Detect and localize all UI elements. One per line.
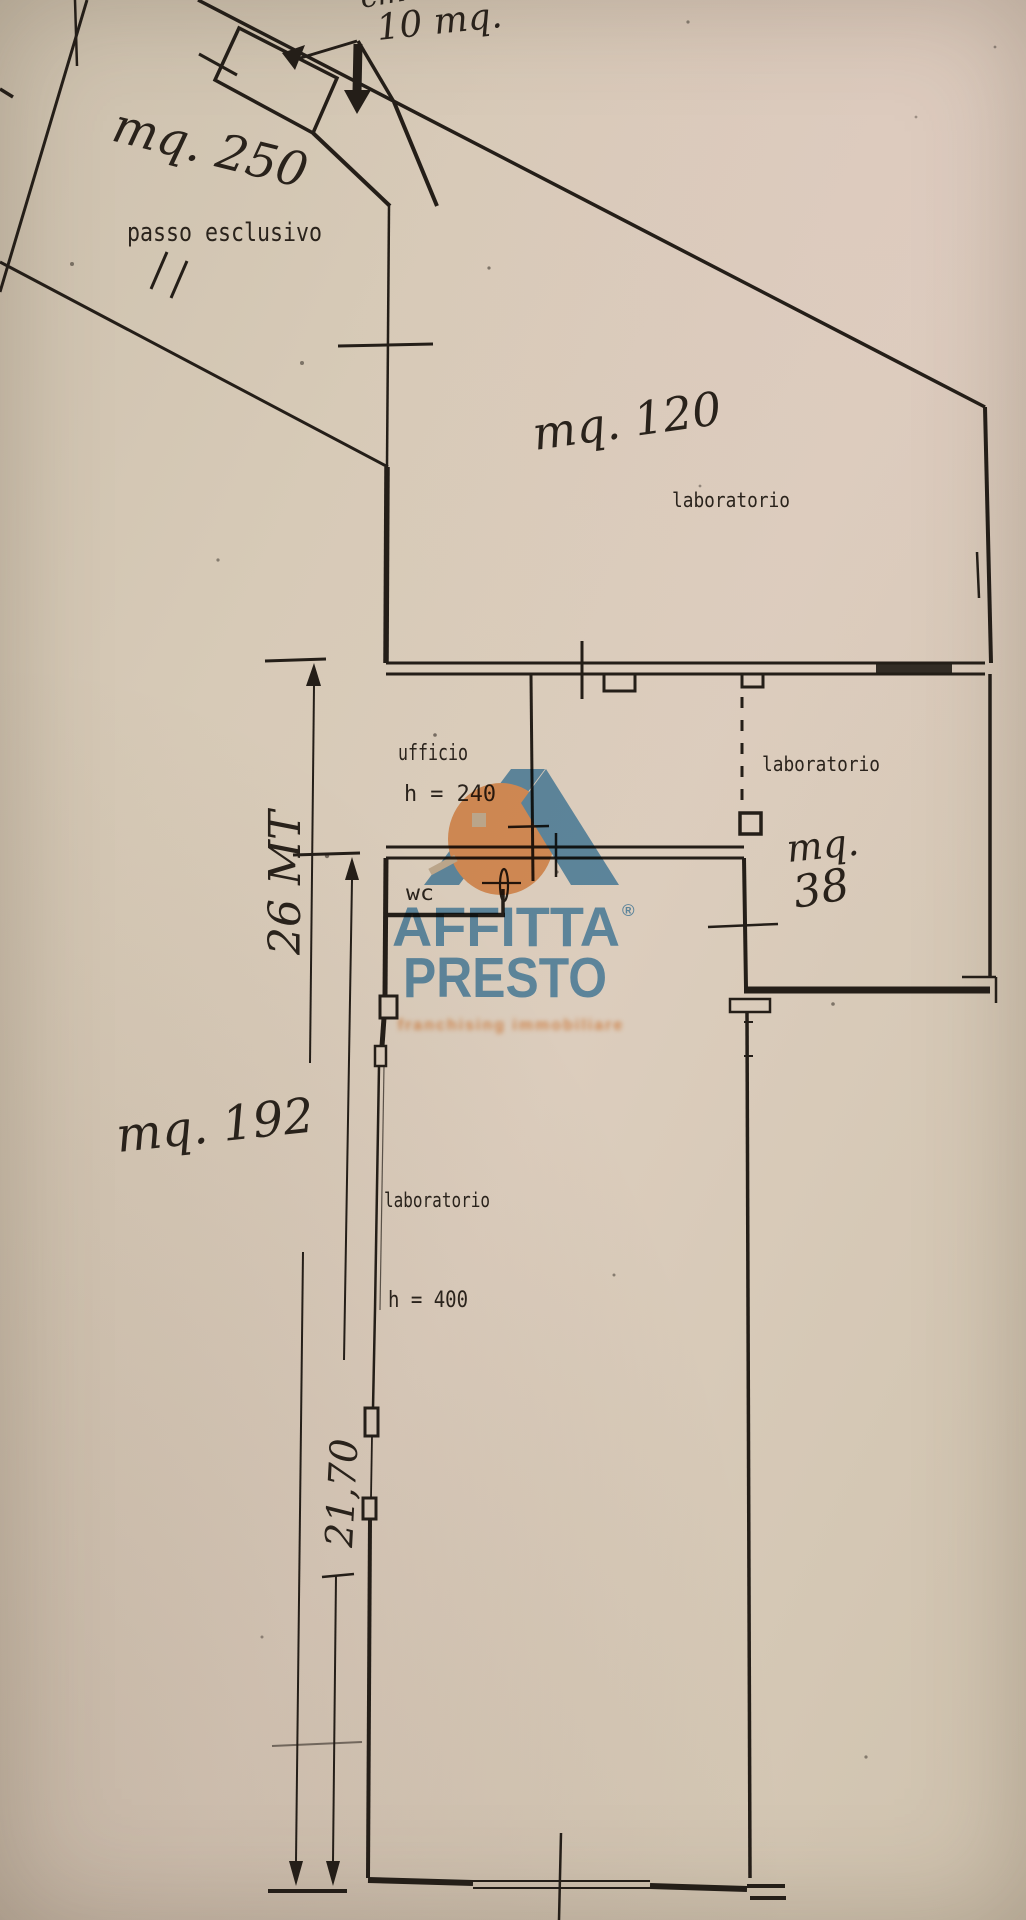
- floorplan-photo: passo esclusivo laboratorio ufficio h = …: [0, 0, 1026, 1920]
- passo-area-note: mq. 250: [107, 97, 313, 199]
- left-total-dimension: 26 MT: [260, 807, 311, 956]
- lab192-area-note: mq. 192: [113, 1088, 316, 1164]
- logo-mark-notch: [472, 813, 486, 827]
- logo-wordmark-line2: PRESTO: [403, 946, 607, 1010]
- paper-specks: [70, 20, 996, 1758]
- lab192-height-label: h = 400: [388, 1288, 468, 1313]
- lab38-label: laboratorio: [762, 752, 880, 776]
- passo-esclusivo-label: passo esclusivo: [127, 218, 322, 248]
- ufficio-label: ufficio: [398, 741, 468, 766]
- lab38-area-value: 38: [789, 859, 853, 919]
- lab120-area-note: mq. 120: [529, 381, 725, 461]
- floorplan-drawing: passo esclusivo laboratorio ufficio h = …: [0, 0, 1026, 1920]
- lab192-label: laboratorio: [384, 1188, 490, 1212]
- structure-area-note: 10 mq.: [375, 0, 504, 49]
- lab120-label: laboratorio: [672, 488, 790, 512]
- logo-registered-mark: ®: [622, 901, 635, 920]
- building-walls: [338, 206, 996, 1920]
- left-partial-dimension: 21,70: [317, 1438, 367, 1550]
- affitta-presto-watermark: AFFITTA ® PRESTO franchising immobiliare: [392, 769, 635, 1034]
- entrance-arrow-down: [344, 90, 371, 114]
- logo-tagline-blurred: franchising immobiliare: [398, 1017, 624, 1034]
